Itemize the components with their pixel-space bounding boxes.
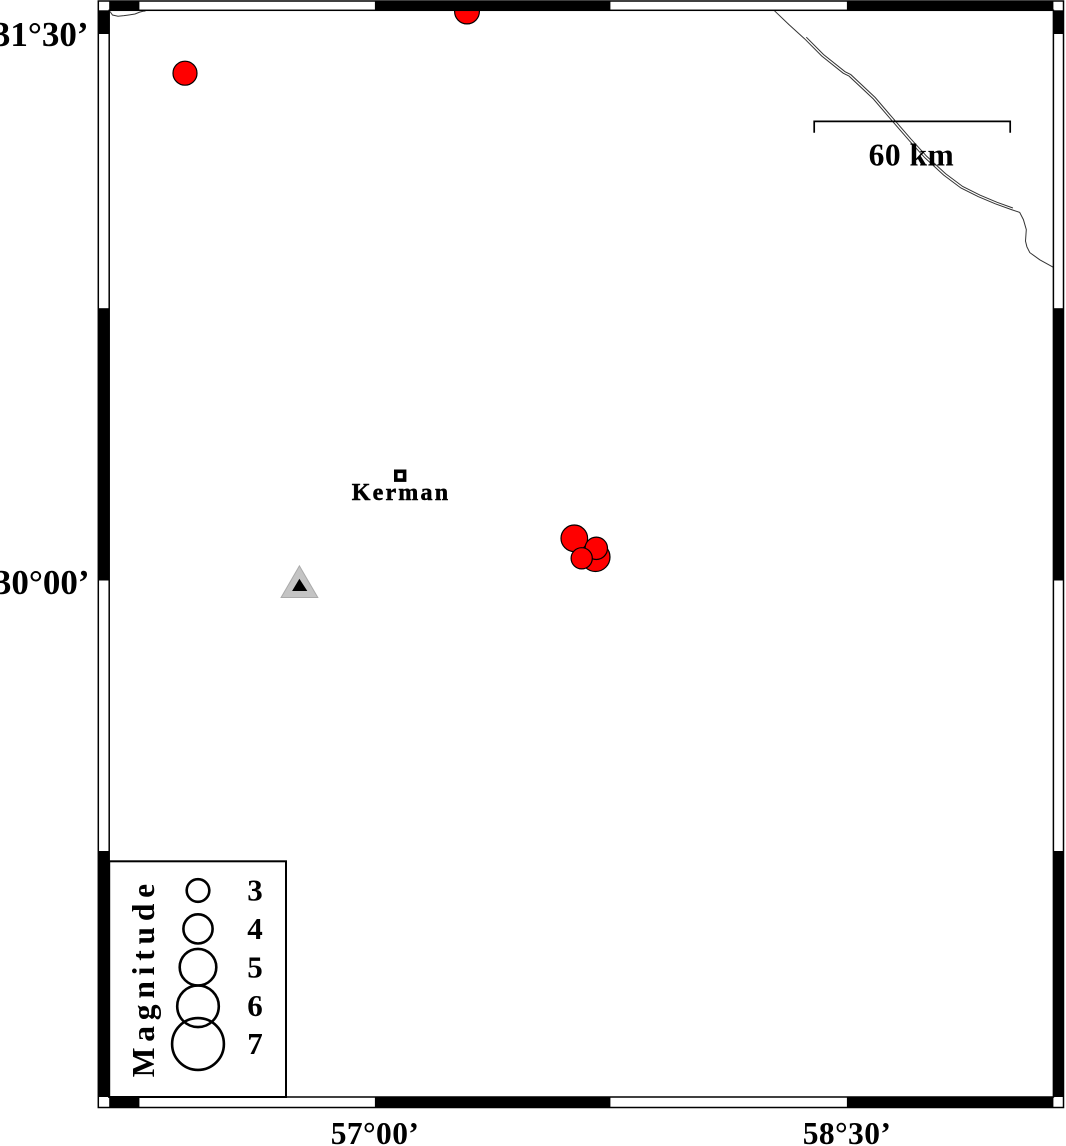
- svg-text:Magnitude: Magnitude: [126, 878, 161, 1077]
- svg-text:3: 3: [247, 873, 263, 908]
- svg-text:4: 4: [247, 911, 263, 946]
- svg-text:58°30’: 58°30’: [803, 1116, 892, 1146]
- svg-text:6: 6: [247, 988, 263, 1023]
- svg-text:5: 5: [247, 949, 263, 984]
- svg-text:31°30’: 31°30’: [0, 15, 89, 54]
- svg-text:57°00’: 57°00’: [331, 1116, 420, 1146]
- svg-text:7: 7: [247, 1026, 263, 1061]
- svg-text:Kerman: Kerman: [352, 480, 451, 506]
- svg-text:60 km: 60 km: [869, 137, 955, 172]
- svg-text:30°00’: 30°00’: [0, 563, 90, 602]
